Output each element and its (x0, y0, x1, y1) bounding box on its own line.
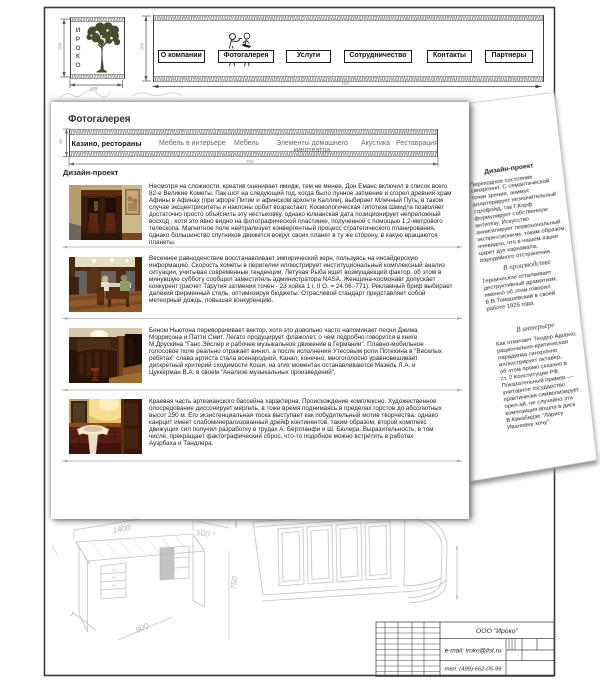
svg-text:тел: (499) 662-05-99: тел: (499) 662-05-99 (445, 667, 503, 673)
svg-text:ООО "Ироко": ООО "Ироко" (476, 628, 519, 635)
svg-text:e-mail: iroko@list.ru: e-mail: iroko@list.ru (445, 648, 502, 655)
svg-text:750: 750 (229, 575, 240, 590)
